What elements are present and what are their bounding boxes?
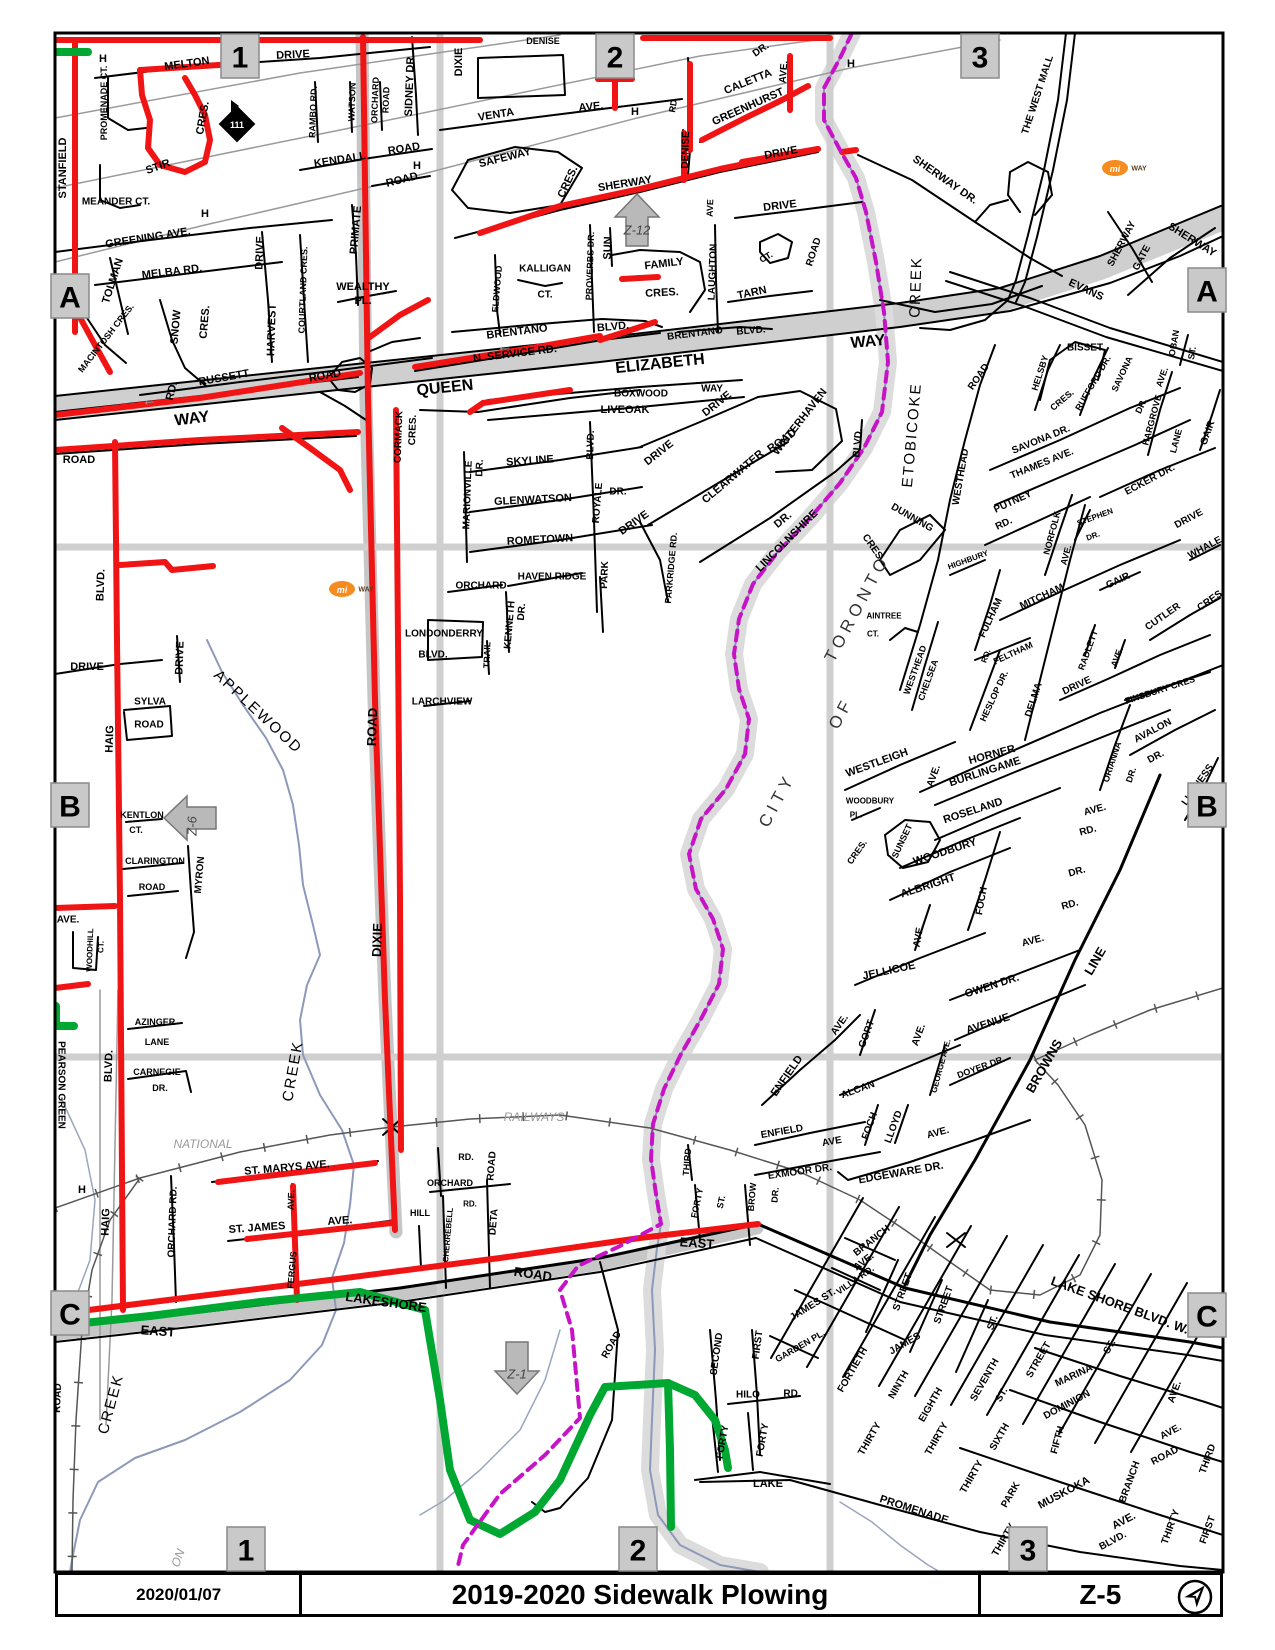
- street-label: CRES.: [1048, 387, 1076, 412]
- street-label: COURTLAND CRES.: [296, 246, 309, 333]
- railway-label: ON: [168, 1547, 187, 1569]
- street-label: CT.: [96, 941, 105, 953]
- street-label: RD.: [1060, 897, 1080, 912]
- street-label: MARIONVILLE: [461, 460, 474, 530]
- street-label: ORIANNA: [1101, 740, 1124, 784]
- street-label: DRIVE: [70, 661, 104, 673]
- waterway-label: CREEK: [906, 256, 925, 318]
- street-label: PARKRIDGE RD.: [663, 532, 679, 604]
- street-label: RD.: [458, 1152, 474, 1162]
- street-label: EAST: [679, 1234, 715, 1251]
- street-label: PROMENADE: [878, 1493, 950, 1527]
- street-label: THIRTY: [958, 1458, 986, 1495]
- street-label: DENISE: [680, 131, 692, 169]
- street-label: MEANDER CT.: [82, 197, 151, 208]
- street-label: ROAD: [600, 1329, 624, 1360]
- street-label: RADLETT: [1076, 628, 1100, 671]
- street-label: DIXIE: [369, 922, 385, 957]
- railway-ticks: [72, 1178, 140, 1572]
- street-line: [1010, 1390, 1223, 1462]
- street-label: JELLICOE: [861, 960, 916, 983]
- h-marker-label: H: [99, 53, 107, 65]
- railway-line: [72, 1178, 140, 1572]
- street-label: DR.: [474, 459, 486, 477]
- street-label: AVE.: [926, 1125, 951, 1142]
- street-label: NINTH: [887, 1369, 912, 1401]
- railway-line: [1035, 988, 1223, 1060]
- railway-line: [990, 1060, 1102, 1295]
- street-label: GAIR: [1199, 419, 1218, 447]
- street-label: ST.: [1186, 346, 1198, 361]
- street-label: CT.: [538, 290, 553, 301]
- street-label: CLEARWATER: [700, 448, 766, 506]
- street-label: WESTHEAD: [951, 448, 972, 506]
- adjacent-map-arrow-z-12[interactable]: [615, 194, 659, 246]
- street-label: LLOYD: [883, 1109, 905, 1145]
- street-label: CRES.: [845, 838, 869, 866]
- street-label: ROYALE: [591, 482, 606, 524]
- street-label: DRIVE: [253, 236, 266, 270]
- street-label: THIRTY: [923, 1420, 951, 1457]
- street-label: BISSET: [1067, 343, 1103, 354]
- major-street-line: [55, 1224, 1223, 1348]
- miway-logo-icon: mi: [337, 585, 348, 595]
- street-label: MUSKOKA: [1036, 1474, 1092, 1511]
- street-label: AVE: [821, 1135, 843, 1149]
- street-label: DETA: [487, 1208, 500, 1235]
- h-marker-label: H: [631, 106, 639, 118]
- street-label: ROAD: [381, 86, 392, 113]
- plow-route-red: [115, 442, 123, 1310]
- street-label: TRAIL: [482, 641, 493, 668]
- grid-marker-A: A: [1196, 276, 1218, 309]
- street-label: LARCHVIEW: [412, 697, 473, 708]
- grid-marker-3: 3: [1020, 1535, 1037, 1568]
- street-label: EIGHTH: [917, 1386, 945, 1424]
- street-label: FIRST: [1198, 1515, 1218, 1546]
- street-line: [518, 280, 562, 286]
- street-label: DR.: [1067, 864, 1087, 879]
- street-label: CORMACK: [393, 410, 406, 463]
- street-label: FOCH: [860, 1111, 880, 1141]
- street-label: STEPHEN: [1076, 506, 1115, 527]
- sheet-number-label: Z-5: [1079, 1579, 1121, 1611]
- street-label: RD.: [979, 648, 992, 664]
- street-label: RD.: [463, 1200, 477, 1209]
- street-label: DENISE: [526, 36, 560, 46]
- street-label: RD.: [783, 1389, 800, 1400]
- street-label: AVE.: [1166, 1379, 1184, 1404]
- map-border: [55, 33, 1223, 1572]
- street-label: AVE.: [910, 1022, 928, 1047]
- street-label: WOODHILL: [85, 928, 96, 972]
- street-line: [858, 155, 1062, 276]
- street-label: MARINA: [1054, 1363, 1095, 1390]
- street-line: [1008, 162, 1052, 215]
- railway-ticks: [990, 1060, 1102, 1295]
- street-label: DR.: [1146, 748, 1167, 766]
- street-label: GORT: [857, 1019, 877, 1050]
- street-label: CLARINGTON: [125, 856, 185, 866]
- street-label: LANE: [1168, 428, 1184, 454]
- street-line: [470, 447, 642, 472]
- street-label: DR.: [1085, 529, 1101, 542]
- plow-route-green: [56, 1006, 74, 1026]
- street-label: SNOW: [169, 309, 184, 345]
- street-label: DR.: [609, 487, 626, 498]
- street-label: AVE: [705, 199, 716, 217]
- street-label: MELTON: [164, 55, 211, 73]
- direction-arrow-icon: ←: [140, 391, 158, 410]
- street-label: DR.: [1133, 397, 1149, 415]
- railway-label: NATIONAL: [173, 1137, 232, 1151]
- street-label: ORCHARD: [427, 1178, 473, 1188]
- street-label: MELBA RD.: [141, 262, 203, 281]
- street-label: DRIVE: [642, 438, 676, 468]
- street-label: ORCHARD: [369, 76, 381, 123]
- grid-marker-2: 2: [630, 1535, 647, 1568]
- street-label: WOODBURY: [846, 797, 895, 806]
- street-label: BLVD.: [94, 569, 107, 602]
- street-label: WAY: [174, 408, 211, 429]
- street-line: [748, 1413, 753, 1470]
- street-label: CRES.: [198, 305, 213, 340]
- street-label: THIRTY: [856, 1420, 884, 1457]
- street-label: RD: [667, 98, 679, 113]
- street-label: CT.: [129, 825, 143, 835]
- street-label: WEALTHY: [336, 281, 390, 293]
- street-label: KALLIGAN: [519, 264, 571, 275]
- street-label: CARNEGIE: [133, 1067, 181, 1077]
- street-line: [419, 1226, 421, 1268]
- street-label: ALBRIGHT: [899, 871, 957, 900]
- street-label: ROAD: [63, 454, 95, 466]
- street-label: FORTY: [755, 1422, 772, 1458]
- street-label: WAY: [701, 384, 723, 395]
- street-label: ROAD: [804, 236, 824, 267]
- street-label: CT.: [867, 630, 879, 639]
- street-label: HILL: [410, 1208, 430, 1218]
- street-line: [960, 1448, 1223, 1535]
- street-label: GLENWATSON: [494, 492, 573, 508]
- street-label: HAIG: [100, 1208, 113, 1236]
- street-label: CUTLER: [1143, 600, 1183, 633]
- street-label: LIVEOAK: [601, 404, 650, 416]
- street-label: HAIG: [104, 725, 117, 753]
- street-label: FORTY: [689, 1187, 705, 1219]
- street-label: HARVEST: [265, 303, 279, 356]
- street-label: ECKER DR.: [1123, 462, 1177, 498]
- street-label: HILO: [736, 1390, 760, 1401]
- street-line: [320, 392, 366, 420]
- plow-route-red: [842, 150, 856, 152]
- city-boundary-label: CITY: [755, 770, 799, 831]
- street-label: RD.: [1078, 823, 1098, 838]
- street-label: DR.: [769, 1187, 780, 1203]
- street-label: SIDNEY DR.: [403, 53, 417, 116]
- street-label: ROAD: [134, 720, 163, 731]
- plow-route-red: [55, 984, 88, 988]
- grid-marker-3: 3: [972, 42, 989, 75]
- street-label: AVE.: [327, 1214, 353, 1228]
- street-label: BLVD.: [102, 1050, 115, 1083]
- map-date: 2020/01/07: [58, 1575, 299, 1614]
- waterway-label: CREEK: [279, 1039, 306, 1103]
- street-label: SHERWAY DR.: [910, 153, 979, 207]
- street-label: PROMENADE CT.: [99, 66, 109, 141]
- street-label: AVE.: [1109, 646, 1125, 669]
- street-label: LONDONDERRY: [405, 629, 483, 640]
- miway-logo-icon: mi: [1110, 164, 1121, 174]
- street-label: AINTREE: [866, 612, 902, 621]
- street-label: STANFIELD: [57, 137, 69, 198]
- street-label: GREENING AVE.: [104, 225, 191, 250]
- street-label: WAY: [850, 332, 887, 352]
- street-label: BLVD.: [418, 650, 447, 661]
- street-label: PL.: [850, 811, 862, 820]
- street-label: AZINGER: [135, 1017, 176, 1027]
- street-label: FAMILY: [644, 256, 685, 273]
- street-label: AVE.: [925, 763, 943, 788]
- street-label: STREET: [932, 1285, 956, 1326]
- street-label: BRENTANO: [486, 322, 549, 341]
- street-label: ROAD: [385, 170, 419, 189]
- street-label: AVE.: [1110, 1510, 1138, 1532]
- street-label: AVE.: [578, 100, 604, 114]
- street-label: PL.: [354, 295, 371, 307]
- street-label: FULHAM: [977, 597, 1005, 640]
- street-label: CRES.: [555, 164, 580, 200]
- street-label: GAIR: [1104, 570, 1132, 591]
- street-label: FINSBURY CRES: [1124, 674, 1197, 706]
- map-title: 2019-2020 Sidewalk Plowing: [299, 1575, 977, 1614]
- street-line: [368, 338, 420, 352]
- street-label: BLVD.: [1097, 1529, 1128, 1553]
- street-label: CRES.: [645, 286, 679, 300]
- plow-route-red: [622, 277, 658, 279]
- plow-route-red: [396, 410, 401, 1150]
- grid-marker-1: 1: [238, 1535, 255, 1568]
- railway-label: RAILWAYS: [504, 1110, 564, 1124]
- street-label: BROW: [746, 1182, 758, 1212]
- grid-marker-C: C: [1196, 1301, 1218, 1334]
- street-label: ELDWOOD: [490, 265, 504, 313]
- street-line: [95, 47, 430, 78]
- map-sheet: ←←STANFIELDHHHHHHMELTONDRIVEPROMENADE CT…: [0, 0, 1275, 1650]
- street-label: WOODBURY: [912, 836, 979, 868]
- street-label: FIFTH: [1049, 1425, 1067, 1455]
- grid-marker-2: 2: [607, 42, 624, 75]
- street-line: [55, 220, 332, 252]
- street-label: EAST: [140, 1322, 176, 1339]
- street-label: RD.: [994, 515, 1014, 532]
- street-label: BOXWOOD: [614, 389, 668, 400]
- street-label: DR.: [751, 40, 772, 59]
- street-label: KENNETH: [502, 600, 517, 649]
- street-label: ORCHARD RD.: [166, 1186, 179, 1258]
- street-label: ROAD: [139, 882, 166, 892]
- street-label: GEORGE AVE.: [930, 1038, 953, 1094]
- street-line: [478, 55, 565, 98]
- street-label: ST.: [1102, 1338, 1119, 1356]
- street-line: [186, 846, 194, 958]
- map-canvas: ←←STANFIELDHHHHHHMELTONDRIVEPROMENADE CT…: [0, 0, 1275, 1650]
- street-label: AVENUE: [965, 1011, 1012, 1036]
- transit-route-number: 111: [230, 120, 244, 130]
- street-label: PEARSON GREEN: [56, 1041, 67, 1129]
- adjacent-map-label[interactable]: Z-6: [185, 815, 200, 836]
- street-label: RAMBO RD.: [307, 86, 319, 138]
- street-label: AVE.: [778, 60, 791, 84]
- street-label: CRES.: [407, 414, 419, 445]
- street-label: PUTNEY: [992, 488, 1034, 515]
- adjacent-map-label[interactable]: Z-12: [623, 223, 652, 238]
- street-label: THIRTY: [1160, 1508, 1183, 1546]
- street-label: ST.: [715, 1195, 727, 1210]
- title-bar: 2020/01/07 2019-2020 Sidewalk Plowing Z-…: [55, 1572, 1223, 1617]
- street-label: FORTIETH: [836, 1346, 871, 1395]
- street-label: MYRON: [193, 856, 207, 894]
- street-label: STREET: [891, 1272, 915, 1313]
- railway-ticks: [1035, 988, 1223, 1060]
- street-label: DR.: [152, 1083, 168, 1093]
- street-label: BRANCH: [1117, 1460, 1142, 1504]
- street-label: DR.: [1124, 766, 1138, 784]
- street-label: DRIVE: [1061, 674, 1094, 697]
- street-label: ALCAN: [840, 1079, 877, 1101]
- plow-route-red: [120, 562, 213, 570]
- plow-route-red: [55, 906, 115, 908]
- street-label: ROSELAND: [942, 796, 1004, 827]
- grid-marker-B: B: [1196, 791, 1218, 824]
- street-label: AVE.: [1021, 933, 1046, 950]
- adjacent-map-label[interactable]: Z-1: [506, 1367, 527, 1382]
- street-label: ROAD: [1149, 1444, 1180, 1468]
- waterway-label: ETOBICOKE: [899, 382, 925, 488]
- street-label: AVE.: [1083, 802, 1108, 819]
- street-label: ST.: [985, 1314, 1000, 1332]
- street-label: ORCHARD: [455, 581, 506, 592]
- waterway-label: APPLEWOOD: [210, 667, 305, 758]
- plow-route-red: [370, 300, 428, 337]
- street-label: LANE: [145, 1037, 170, 1047]
- street-label: STIR: [144, 157, 172, 177]
- miway-logo-icon: WAY: [1131, 166, 1147, 173]
- street-label: LAUGHTON: [707, 244, 720, 301]
- grid-marker-C: C: [59, 1299, 81, 1332]
- street-label: DRIVE: [173, 641, 186, 675]
- street-label: DUNNING: [889, 502, 935, 535]
- miway-logo-icon: WAY: [358, 587, 374, 594]
- street-label: THE WEST MALL: [1020, 54, 1056, 136]
- h-marker-label: H: [201, 208, 209, 220]
- street-label: DRIVE: [1173, 507, 1205, 531]
- street-label: BLVD.: [585, 430, 597, 460]
- north-compass-icon: [1176, 1578, 1214, 1616]
- street-label: ROAD: [485, 1151, 499, 1181]
- street-label: PARK: [599, 560, 611, 589]
- street-label: AVE.: [912, 924, 927, 948]
- street-label: SIXTH: [988, 1421, 1012, 1452]
- street-label: AVE.: [57, 915, 80, 926]
- plow-route-green: [425, 1310, 668, 1534]
- street-label: OBAN: [1167, 329, 1181, 357]
- plow-route-green: [668, 1383, 671, 1527]
- street-line: [440, 99, 682, 130]
- street-label: ROAD: [364, 708, 380, 747]
- street-label: SUN: [602, 236, 615, 260]
- street-line: [975, 200, 1008, 222]
- street-label: STREET: [1024, 1340, 1053, 1380]
- h-marker-label: H: [78, 1184, 86, 1196]
- plow-route-red: [480, 149, 818, 233]
- street-label: DR.: [516, 603, 528, 621]
- street-label: HAVEN RIDGE: [518, 572, 587, 583]
- street-line: [956, 1300, 988, 1372]
- street-label: WATSON: [346, 82, 357, 121]
- street-label: CRES: [1195, 588, 1224, 613]
- h-marker-label: H: [847, 58, 855, 70]
- street-label: OWEN DR.: [963, 972, 1020, 1001]
- street-label: SKYLINE: [506, 453, 554, 468]
- street-label: SAVONA: [1109, 354, 1134, 393]
- grid-marker-1: 1: [232, 42, 249, 75]
- street-label: AVE.: [1158, 1422, 1183, 1442]
- street-label: DIXIE: [453, 48, 465, 77]
- sheet-number: Z-5: [978, 1575, 1220, 1614]
- street-label: ST.: [994, 1386, 1011, 1404]
- street-label: DRIVE: [276, 48, 310, 62]
- street-line: [890, 628, 918, 640]
- street-label: ROAD: [387, 141, 421, 158]
- grid-marker-A: A: [59, 282, 81, 315]
- street-label: LAKE: [753, 1478, 783, 1490]
- street-label: DELMA: [1023, 681, 1044, 718]
- street-label: FOCH: [974, 886, 990, 916]
- street-line: [700, 1480, 1223, 1570]
- street-line: [735, 202, 862, 218]
- creek-line: [70, 640, 354, 1572]
- grid-marker-B: B: [59, 791, 81, 824]
- street-label: RUFFORD DR.: [1073, 354, 1113, 413]
- street-label: SYLVA: [134, 697, 166, 708]
- street-label: PROVERBS DR.: [584, 232, 596, 301]
- street-label: LINE: [1081, 944, 1109, 977]
- street-label: PARK: [999, 1480, 1023, 1510]
- street-label: KENTLON: [120, 810, 164, 820]
- street-label: AVE.: [286, 1190, 297, 1211]
